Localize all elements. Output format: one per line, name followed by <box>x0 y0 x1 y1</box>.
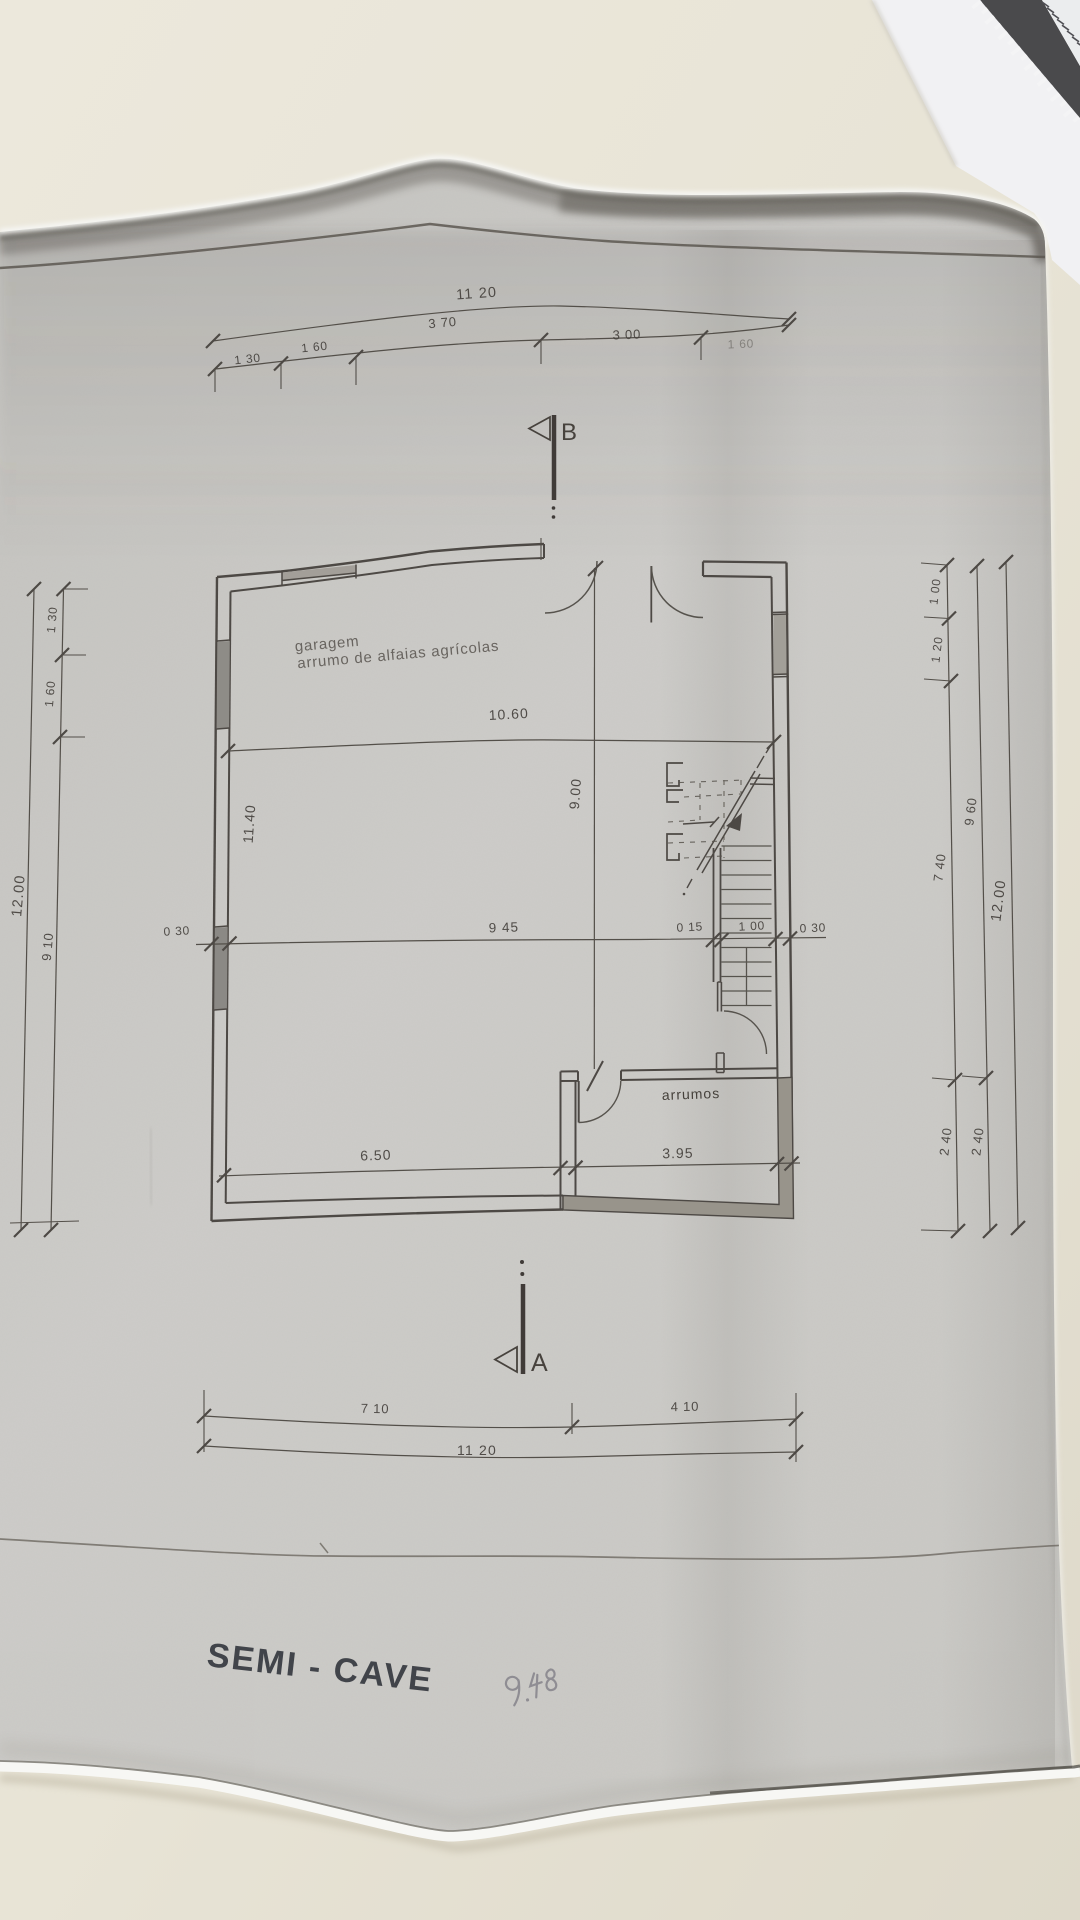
svg-text:3 00: 3 00 <box>612 327 641 343</box>
svg-text:4 10: 4 10 <box>671 1399 700 1414</box>
svg-text:6.50: 6.50 <box>360 1146 392 1163</box>
svg-text:1 30: 1 30 <box>234 351 262 368</box>
svg-text:11 20: 11 20 <box>456 285 498 304</box>
svg-text:0 30: 0 30 <box>799 921 826 936</box>
svg-text:arrumos: arrumos <box>662 1085 721 1103</box>
svg-text:1 60: 1 60 <box>42 680 58 708</box>
svg-text:1 60: 1 60 <box>727 337 754 352</box>
svg-text:B: B <box>561 419 577 446</box>
svg-text:10.60: 10.60 <box>488 705 529 723</box>
svg-text:9.00: 9.00 <box>566 778 584 810</box>
svg-text:1 60: 1 60 <box>301 339 329 356</box>
svg-text:1 00: 1 00 <box>738 918 765 933</box>
svg-text:11 20: 11 20 <box>457 1442 497 1458</box>
svg-text:1 30: 1 30 <box>44 606 60 634</box>
svg-text:3 70: 3 70 <box>428 314 458 331</box>
svg-text:A: A <box>531 1349 548 1377</box>
svg-text:9 10: 9 10 <box>39 932 56 962</box>
svg-text:7 10: 7 10 <box>361 1401 390 1416</box>
svg-text:0 30: 0 30 <box>163 923 190 938</box>
svg-text:3.95: 3.95 <box>662 1145 694 1162</box>
svg-text:11.40: 11.40 <box>240 804 259 844</box>
svg-text:9 45: 9 45 <box>488 919 519 935</box>
svg-text:0 15: 0 15 <box>676 919 703 934</box>
